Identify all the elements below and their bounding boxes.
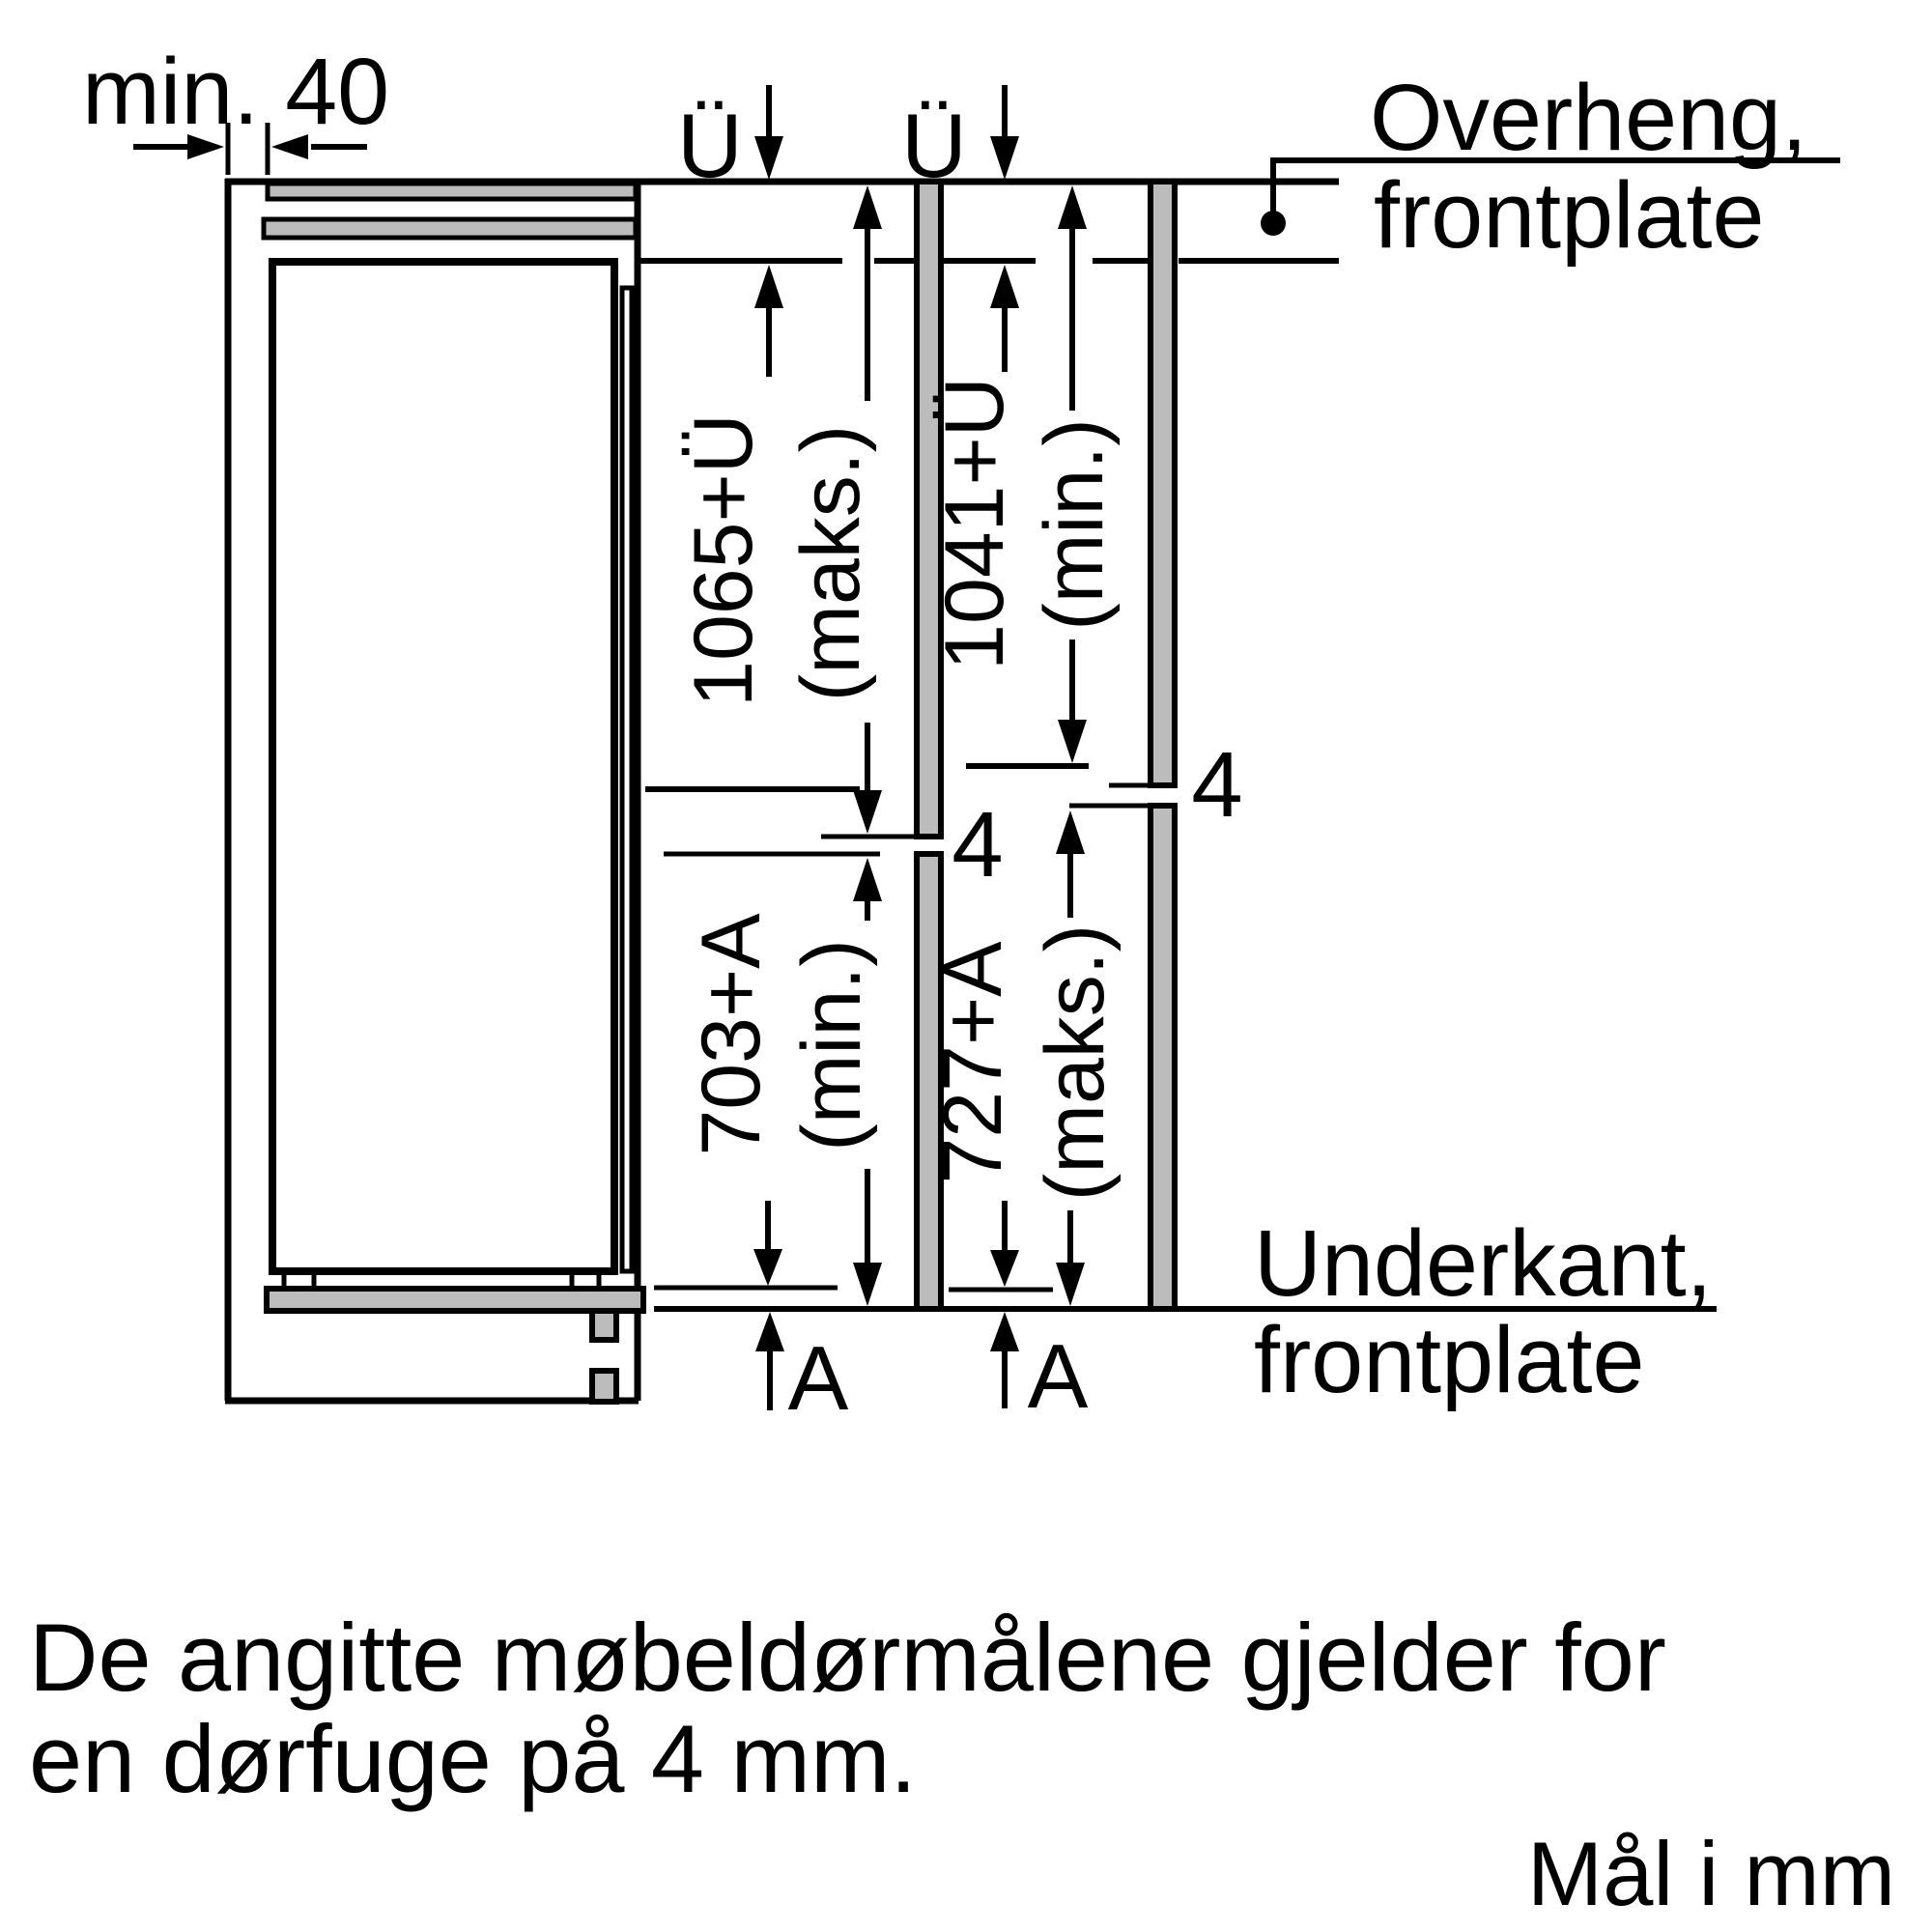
arrow-up-icon <box>755 1312 784 1351</box>
bottom-edge-callout-line2: frontplate <box>1254 1307 1644 1412</box>
overhang-callout-line2: frontplate <box>1374 162 1764 268</box>
installation-diagram: min. 40 Overheng, frontplate <box>0 0 1932 1932</box>
front-spacer-lower <box>592 1371 616 1402</box>
arrow-down-icon <box>754 136 783 180</box>
arrow-down-icon <box>1058 720 1087 763</box>
arrow-up-icon <box>1056 810 1085 854</box>
arrow-down-icon <box>1056 1263 1085 1306</box>
arrow-up-icon <box>990 265 1019 308</box>
overhang-callout: Overheng, frontplate <box>1261 65 1840 268</box>
lower-door-max-value: 727+A <box>926 941 1019 1184</box>
arrow-up-icon <box>754 265 783 308</box>
bottom-edge-callout: Underkant, frontplate <box>1254 1210 1713 1412</box>
note-line1: De angitte møbeldørmålene gjelder for <box>29 1604 1666 1711</box>
note-line2: en dørfuge på 4 mm. <box>29 1705 917 1812</box>
dimension-lower-door-min: 703+A (min.) <box>685 858 882 1306</box>
arrow-down-icon <box>853 790 882 834</box>
arrow-down-icon <box>990 1250 1019 1287</box>
dimension-upper-door-max: 1065+Ü (maks.) <box>677 185 882 834</box>
bottom-edge-callout-line1: Underkant, <box>1254 1210 1713 1316</box>
recess-symbol-label: A <box>1028 1325 1089 1427</box>
front-panel-strip-right-lower <box>1151 806 1175 1309</box>
lower-door-min-qualifier: (min.) <box>785 939 878 1151</box>
upper-door-min-qualifier: (min.) <box>1028 418 1121 631</box>
units-note: Mål i mm <box>1527 1823 1895 1924</box>
arrow-up-icon <box>1058 185 1087 229</box>
dimension-recess-left: A <box>753 1201 849 1429</box>
appliance-door <box>622 288 632 1271</box>
footnotes: De angitte møbeldørmålene gjelder for en… <box>29 1604 1895 1924</box>
lower-door-min-value: 703+A <box>685 913 778 1156</box>
dimension-recess-right: A <box>990 1201 1089 1427</box>
upper-door-max-value: 1065+Ü <box>677 413 770 707</box>
arrow-up-icon <box>990 1312 1019 1351</box>
arrow-down-icon <box>990 136 1019 180</box>
vent-grille-top-bar <box>268 184 636 199</box>
arrow-up-icon <box>853 185 882 229</box>
top-clearance-label: min. 40 <box>82 39 389 144</box>
joint-gap-value-left: 4 <box>952 793 1003 896</box>
plinth-bar <box>267 1289 643 1311</box>
appliance <box>267 262 643 1402</box>
joint-gap-labels: 4 4 <box>952 733 1242 896</box>
leader-dot-icon <box>1261 211 1286 236</box>
dimension-overhang-left: Ü <box>677 85 783 377</box>
dimension-upper-door-min: 1041+Ü (min.) <box>928 185 1121 763</box>
recess-symbol-label: A <box>788 1327 849 1429</box>
overhang-callout-line1: Overheng, <box>1370 65 1807 170</box>
dimension-top-clearance: min. 40 <box>82 39 389 175</box>
vent-grille-second-bar <box>264 219 636 238</box>
front-spacer-upper <box>592 1311 616 1340</box>
appliance-body <box>272 262 614 1271</box>
overhang-symbol-label: Ü <box>677 95 743 196</box>
upper-door-max-qualifier: (maks.) <box>784 425 877 702</box>
arrow-up-icon <box>853 858 882 901</box>
joint-gap-value-right: 4 <box>1191 733 1242 837</box>
arrow-down-icon <box>853 1263 882 1306</box>
front-panel-strip-right-upper <box>1151 182 1175 785</box>
overhang-symbol-label: Ü <box>901 95 967 196</box>
upper-door-min-value: 1041+Ü <box>928 377 1021 670</box>
lower-door-max-qualifier: (maks.) <box>1029 924 1122 1202</box>
arrow-down-icon <box>753 1249 782 1286</box>
